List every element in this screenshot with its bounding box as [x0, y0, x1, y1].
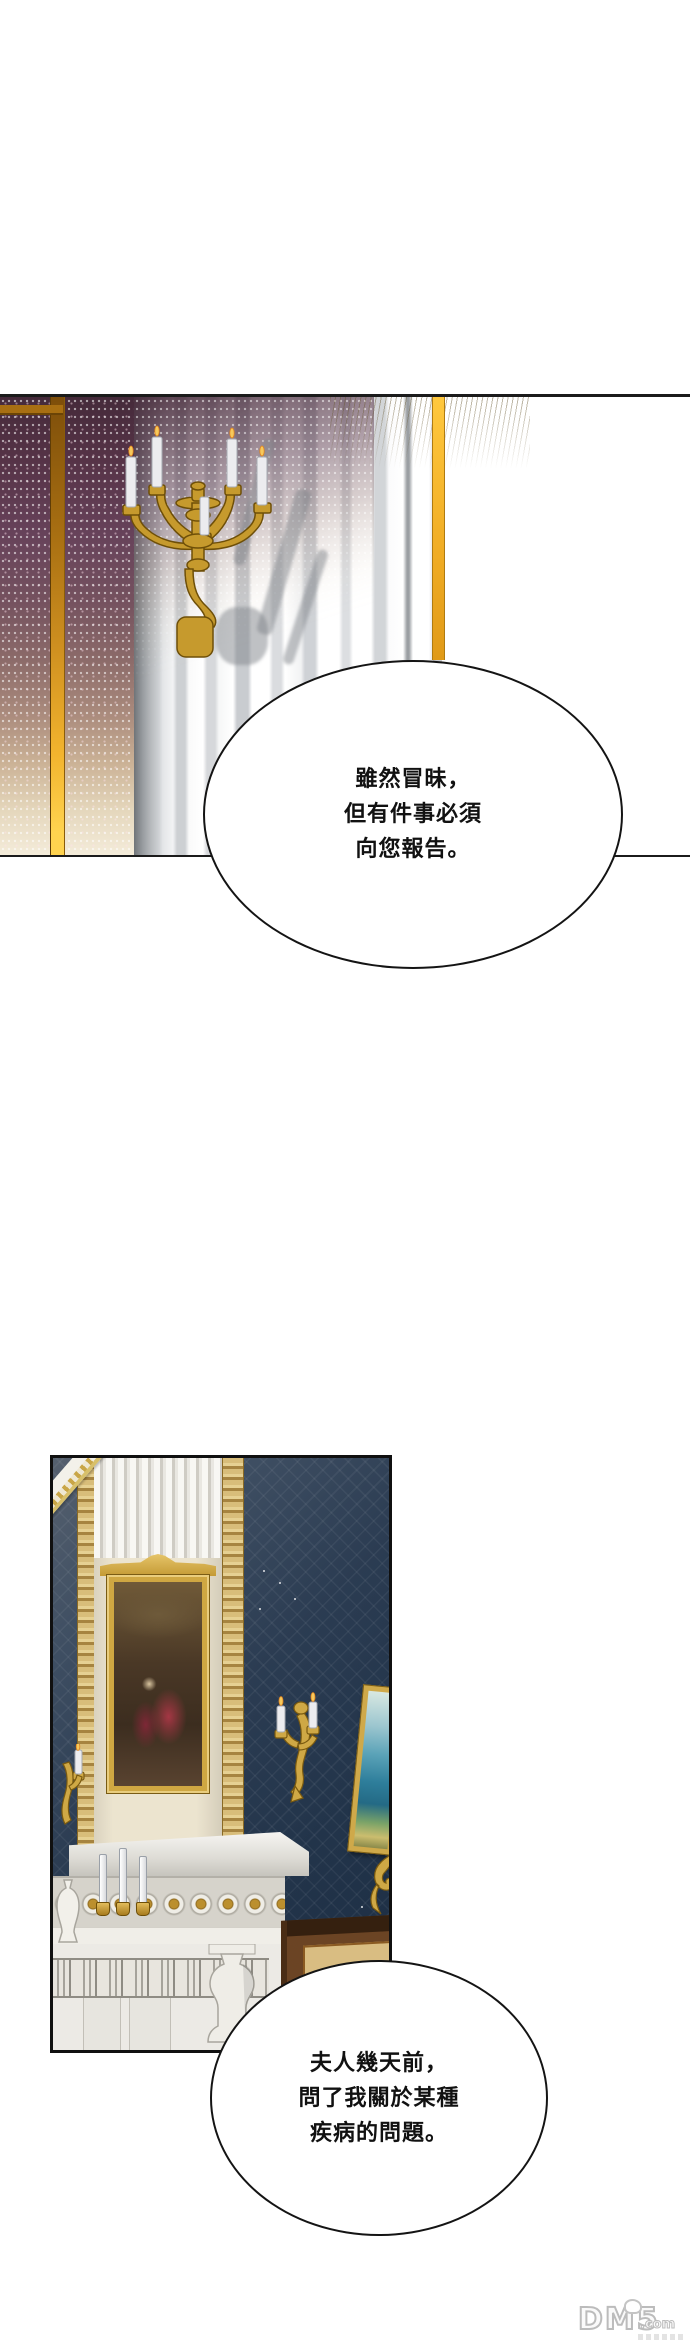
- wall-sconce-left: [50, 1744, 87, 1838]
- gold-framed-figure-painting: [106, 1574, 210, 1794]
- wall-sparkle: [294, 1598, 296, 1600]
- bubble2-line3: 疾病的問題。: [298, 2116, 459, 2151]
- wall-sparkle: [279, 1582, 281, 1584]
- candle-cup: [136, 1902, 150, 1916]
- dm5-caption-marks: [638, 2334, 684, 2340]
- dm5-logo-suffix: .com: [640, 2317, 675, 2332]
- bubble2-line1: 夫人幾天前，: [298, 2046, 459, 2081]
- wall-sparkle: [361, 1906, 363, 1908]
- mantel-candle: [139, 1856, 147, 1904]
- white-urn: [55, 1878, 81, 1944]
- bubble1-line3: 向您報告。: [344, 832, 482, 867]
- mantel-candle: [99, 1854, 107, 1904]
- wall-sconce-right: [267, 1690, 325, 1808]
- speech-bubble-2-text: 夫人幾天前， 問了我關於某種 疾病的問題。: [298, 2046, 459, 2151]
- speech-bubble-1-text: 雖然冒昧， 但有件事必須 向您報告。: [344, 762, 482, 867]
- speech-bubble-1: 雖然冒昧， 但有件事必須 向您報告。: [203, 660, 623, 969]
- candle-cup: [96, 1902, 110, 1916]
- gold-wall-trim-vertical: [50, 397, 65, 855]
- rosette-frieze: [53, 1876, 285, 1932]
- mantel-candle: [119, 1848, 127, 1904]
- hatch-shading: [330, 397, 530, 475]
- gold-vertical-stripe: [432, 397, 445, 660]
- gold-decor-band-right: [222, 1458, 244, 1876]
- bubble1-line2: 但有件事必須: [344, 797, 482, 832]
- wall-sparkle: [259, 1608, 261, 1610]
- speech-bubble-2: 夫人幾天前， 問了我關於某種 疾病的問題。: [210, 1960, 548, 2236]
- gold-scroll-ornament: [365, 1854, 392, 1916]
- dm5-mascot-icon: [624, 2299, 642, 2314]
- fluted-frieze: [94, 1458, 222, 1562]
- bubble2-line2: 問了我關於某種: [298, 2081, 459, 2116]
- gold-wall-trim-horizontal: [0, 405, 63, 415]
- candelabra-sconce-icon: [103, 399, 293, 664]
- comic-page: 雖然冒昧， 但有件事必須 向您報告。: [0, 0, 690, 2348]
- bubble1-line1: 雖然冒昧，: [344, 762, 482, 797]
- painting-canvas: [114, 1582, 202, 1786]
- dm5-watermark: DM5 .com: [578, 2303, 690, 2345]
- wall-sparkle: [263, 1570, 265, 1572]
- candle-cup: [116, 1902, 130, 1916]
- seascape-canvas: [354, 1691, 392, 1850]
